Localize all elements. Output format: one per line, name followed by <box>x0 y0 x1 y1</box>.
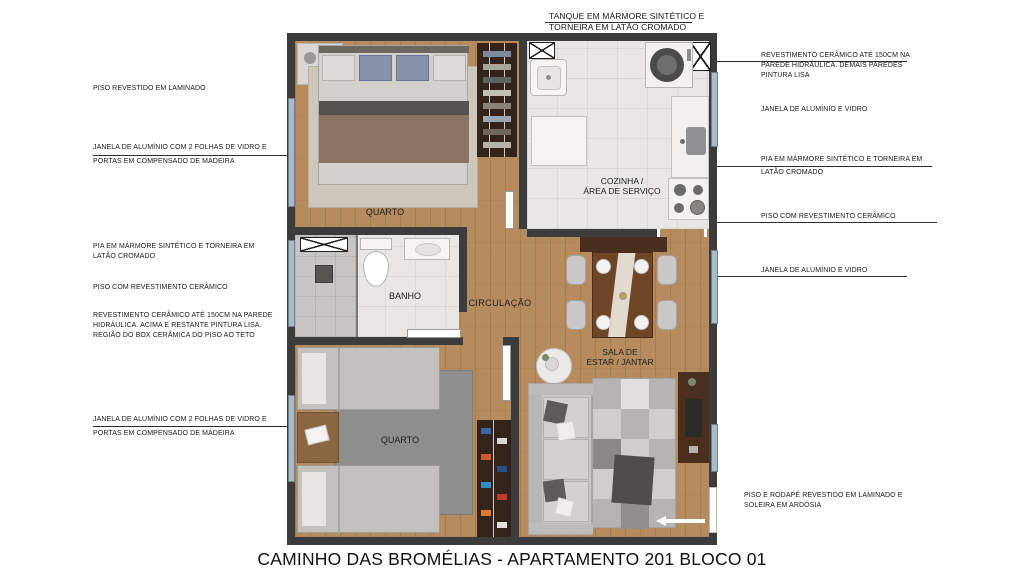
wall-kitchen-bottom <box>527 229 657 237</box>
clothes-item <box>483 64 511 70</box>
washer-panel <box>687 49 691 61</box>
plate <box>596 259 611 274</box>
toilet-tank <box>360 238 392 250</box>
room-label-line: ESTAR / JANTAR <box>560 357 680 367</box>
sofa-cushion <box>543 439 589 480</box>
sofa <box>528 383 592 535</box>
shoes <box>497 438 507 444</box>
wall-bedroom2-living <box>511 337 519 545</box>
window-living-1 <box>711 250 718 324</box>
clothes-item <box>483 90 511 96</box>
kitchen-counter <box>671 96 709 178</box>
wall-bathroom-bottom <box>295 337 463 345</box>
room-label-kitchen: COZINHA / ÁREA DE SERVIÇO <box>562 176 682 196</box>
clothes-item <box>483 116 511 122</box>
decor-item <box>304 52 316 64</box>
clothes-item <box>483 77 511 83</box>
bed-brown-blanket <box>319 115 469 163</box>
shoes <box>481 510 491 516</box>
bed-pillow <box>322 55 355 81</box>
bed-fold-line <box>338 466 340 534</box>
wardrobe <box>477 43 517 157</box>
entry-door-opening <box>709 487 717 533</box>
bed-pillow <box>433 55 466 81</box>
door-leaf-bedroom1 <box>505 191 514 229</box>
room-label-bedroom2: QUARTO <box>360 435 440 445</box>
tv-rack <box>678 372 709 463</box>
sideboard <box>580 237 667 252</box>
washing-machine <box>645 42 693 88</box>
plate <box>634 259 649 274</box>
shoes <box>497 522 507 528</box>
faucet <box>680 139 685 144</box>
plate <box>634 315 649 330</box>
rug-patch <box>621 379 649 409</box>
decor-item <box>689 446 698 453</box>
washer-drum-inner <box>657 55 677 75</box>
room-label-line: ÁREA DE SERVIÇO <box>562 186 682 196</box>
door-leaf-bedroom2 <box>502 345 511 401</box>
plate <box>596 315 611 330</box>
sofa-backrest <box>529 395 542 523</box>
shoes <box>497 466 507 472</box>
window-bedroom1 <box>288 98 295 207</box>
room-label-living: SALA DE ESTAR / JANTAR <box>560 347 680 367</box>
room-label-line: SALA DE <box>560 347 680 357</box>
decor-plant <box>688 378 696 386</box>
clothes-item <box>483 51 511 57</box>
bed-pillow <box>301 352 327 405</box>
sink-basin <box>415 243 441 256</box>
window-bathroom <box>288 240 295 327</box>
wall-outer-bottom <box>287 537 717 545</box>
bed-headboard <box>319 46 469 53</box>
entry-arrow-shaft <box>665 519 705 523</box>
wall-bedroom1-kitchen <box>519 41 527 229</box>
sofa-armrest <box>529 384 593 395</box>
nightstand <box>297 412 339 463</box>
side-table-plant <box>542 354 549 361</box>
shoe-rack <box>477 420 511 537</box>
throw-pillow-white <box>556 421 577 442</box>
double-bed <box>318 45 468 185</box>
clothes-item <box>483 103 511 109</box>
bed-pillow-blue <box>359 55 392 81</box>
shower-divider <box>356 235 358 337</box>
wardrobe-rail <box>489 43 490 157</box>
shoes <box>481 428 491 434</box>
clothes-item <box>483 129 511 135</box>
room-label-line: COZINHA / <box>562 176 682 186</box>
living-rug <box>592 378 676 528</box>
threshold-mark <box>657 229 660 237</box>
sofa-armrest <box>529 523 593 534</box>
burner <box>693 185 703 195</box>
dining-chair <box>566 300 586 330</box>
wall-bedroom1-bottom <box>295 227 459 235</box>
duct-shaft-bathroom <box>300 237 348 252</box>
clothes-item <box>483 142 511 148</box>
bed-pillow-blue <box>396 55 429 81</box>
laundry-tank <box>530 59 567 96</box>
burner <box>674 203 684 213</box>
rug-throw-blanket <box>611 455 654 506</box>
wall-outer-top <box>287 33 717 41</box>
window-living-2 <box>711 424 718 472</box>
dining-chair <box>566 255 586 285</box>
shower-drain <box>315 265 333 283</box>
single-bed-1 <box>297 347 440 410</box>
duct-shaft-kitchen-right <box>690 42 711 71</box>
room-label-circulation: CIRCULAÇÃO <box>460 298 540 308</box>
dining-chair <box>657 255 677 285</box>
duct-shaft-kitchen-left <box>529 42 555 59</box>
tv <box>685 399 702 437</box>
bed-dark-band <box>319 101 469 115</box>
magazine <box>304 425 329 446</box>
shoe-rack-rail <box>493 420 494 537</box>
door-leaf-bathroom <box>407 329 461 338</box>
shoes <box>481 482 491 488</box>
dining-chair <box>657 300 677 330</box>
bed-pillow <box>301 471 327 527</box>
shoes <box>481 454 491 460</box>
floorplan: QUARTO COZINHA / ÁREA DE SERVIÇO BANHO C… <box>0 0 1024 576</box>
kitchen-cabinet <box>531 116 587 166</box>
burner-pan <box>690 200 705 215</box>
floorplan-title: CAMINHO DAS BROMÉLIAS - APARTAMENTO 201 … <box>0 549 1024 570</box>
floorplan-page: TANQUE EM MÁRMORE SINTÉTICO E TORNEIRA E… <box>0 0 1024 576</box>
centerpiece <box>619 292 627 300</box>
dining-table <box>592 252 653 338</box>
bed-fold-line <box>338 348 340 411</box>
single-bed-2 <box>297 465 440 533</box>
bathroom-sink <box>404 238 450 260</box>
kitchen-sink <box>686 127 706 155</box>
window-kitchen <box>711 72 718 147</box>
wardrobe-rail <box>504 43 505 157</box>
room-label-bedroom1: QUARTO <box>345 207 425 217</box>
room-label-bathroom: BANHO <box>375 291 435 301</box>
window-bedroom2 <box>288 395 295 482</box>
shoes <box>497 494 507 500</box>
tank-drain <box>546 75 551 80</box>
threshold-mark <box>704 229 707 237</box>
